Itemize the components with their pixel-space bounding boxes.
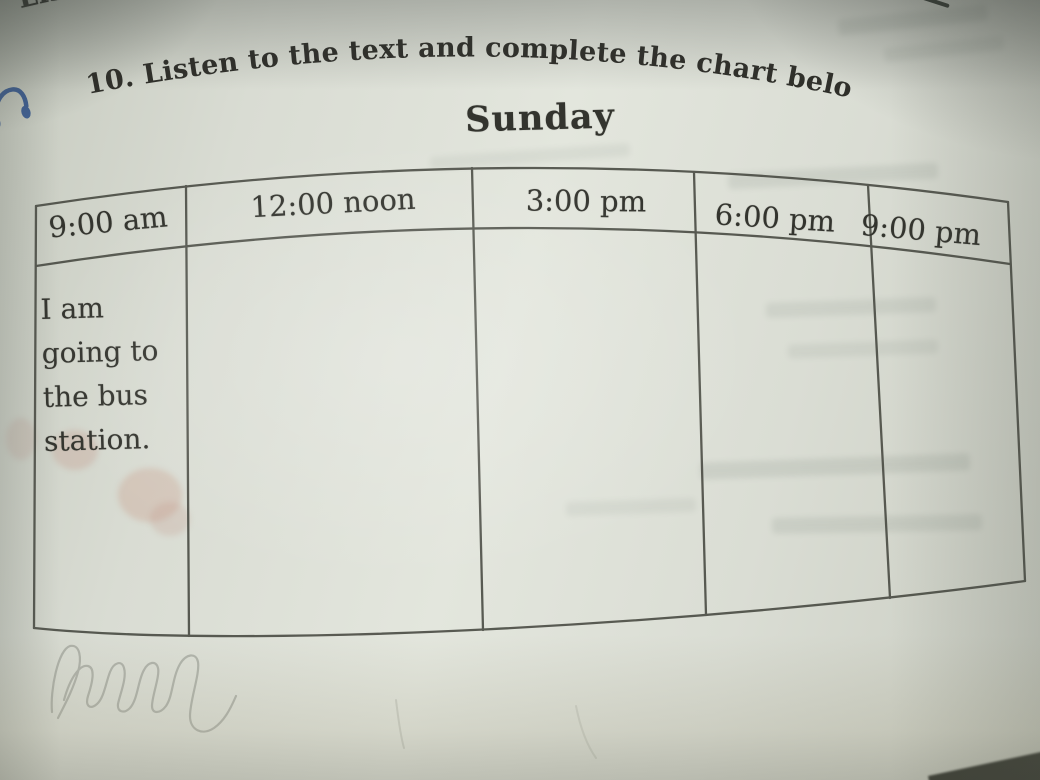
column-header-6pm: 6:00 pm: [714, 197, 836, 238]
headphones-icon: [0, 88, 33, 131]
exercise-instruction: 10. Listen to the text and complete the …: [0, 0, 855, 105]
table-border-left: [34, 206, 36, 628]
table-border-bottom: [34, 581, 1025, 636]
exercise-instruction-text: 10. Listen to the text and complete the …: [0, 0, 855, 105]
table-border-right: [1008, 202, 1025, 581]
handwriting-scribble: [52, 646, 236, 732]
chart-title: Sunday: [465, 96, 616, 141]
table-column-line-2: [472, 168, 483, 630]
table-column-line-3: [694, 172, 706, 615]
table-border-top: [36, 168, 1008, 206]
faint-pencil-marks: [396, 700, 596, 758]
column-header-3pm: 3:00 pm: [526, 183, 647, 218]
cell-9am-entry: I am going to the bus station.: [40, 284, 195, 464]
photo-of-textbook-page: 10. Listen to the text and complete the …: [0, 0, 1040, 780]
